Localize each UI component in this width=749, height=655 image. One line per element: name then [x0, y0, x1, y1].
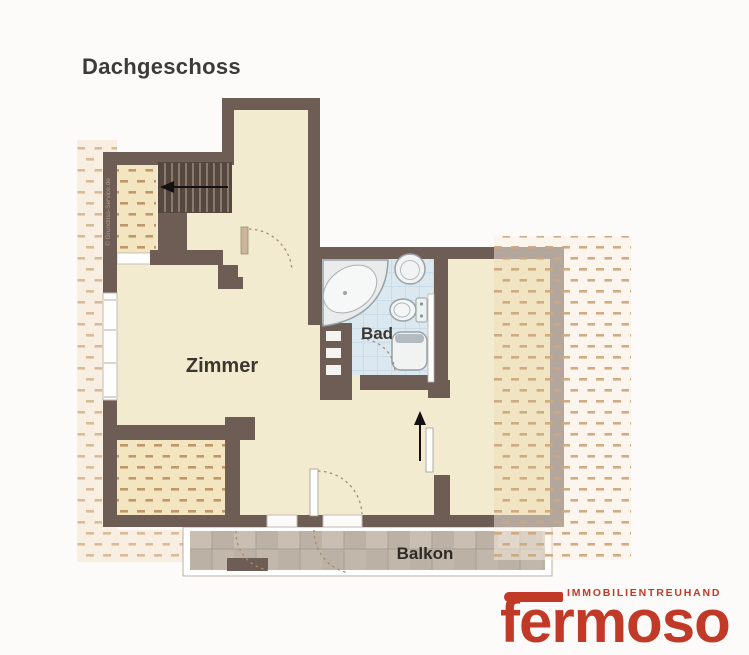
shower-panel: [428, 294, 434, 382]
door-leaf: [426, 428, 433, 472]
wall: [297, 515, 323, 527]
floor-plan: Zimmer Bad Balkon © Grundriss-Service.de: [0, 0, 749, 655]
wall: [428, 380, 450, 398]
hatch-region-exterior-right: [494, 236, 631, 560]
door-threshold: [323, 515, 362, 527]
door-threshold: [267, 515, 297, 527]
wall: [218, 277, 243, 289]
wall: [158, 213, 187, 255]
room-label-balkon: Balkon: [397, 544, 454, 563]
wall: [434, 475, 450, 521]
chimney-vents: [326, 331, 341, 375]
wall: [434, 259, 448, 390]
wall: [150, 250, 223, 265]
wall: [308, 259, 322, 325]
wall: [222, 98, 320, 110]
door-leaf: [310, 469, 318, 516]
door-leaf: [241, 227, 248, 254]
staircase: [158, 162, 232, 213]
wall: [225, 417, 255, 440]
room-label-bad: Bad: [361, 324, 393, 343]
toilet-tank: [416, 298, 427, 322]
wall: [225, 440, 240, 515]
window: [103, 293, 117, 400]
wall: [103, 425, 240, 440]
wall: [108, 515, 267, 527]
room-label-zimmer: Zimmer: [186, 355, 258, 377]
page: Dachgeschoss: [0, 0, 749, 655]
watermark: © Grundriss-Service.de: [104, 178, 112, 246]
wall: [103, 400, 117, 527]
wall: [308, 98, 320, 259]
